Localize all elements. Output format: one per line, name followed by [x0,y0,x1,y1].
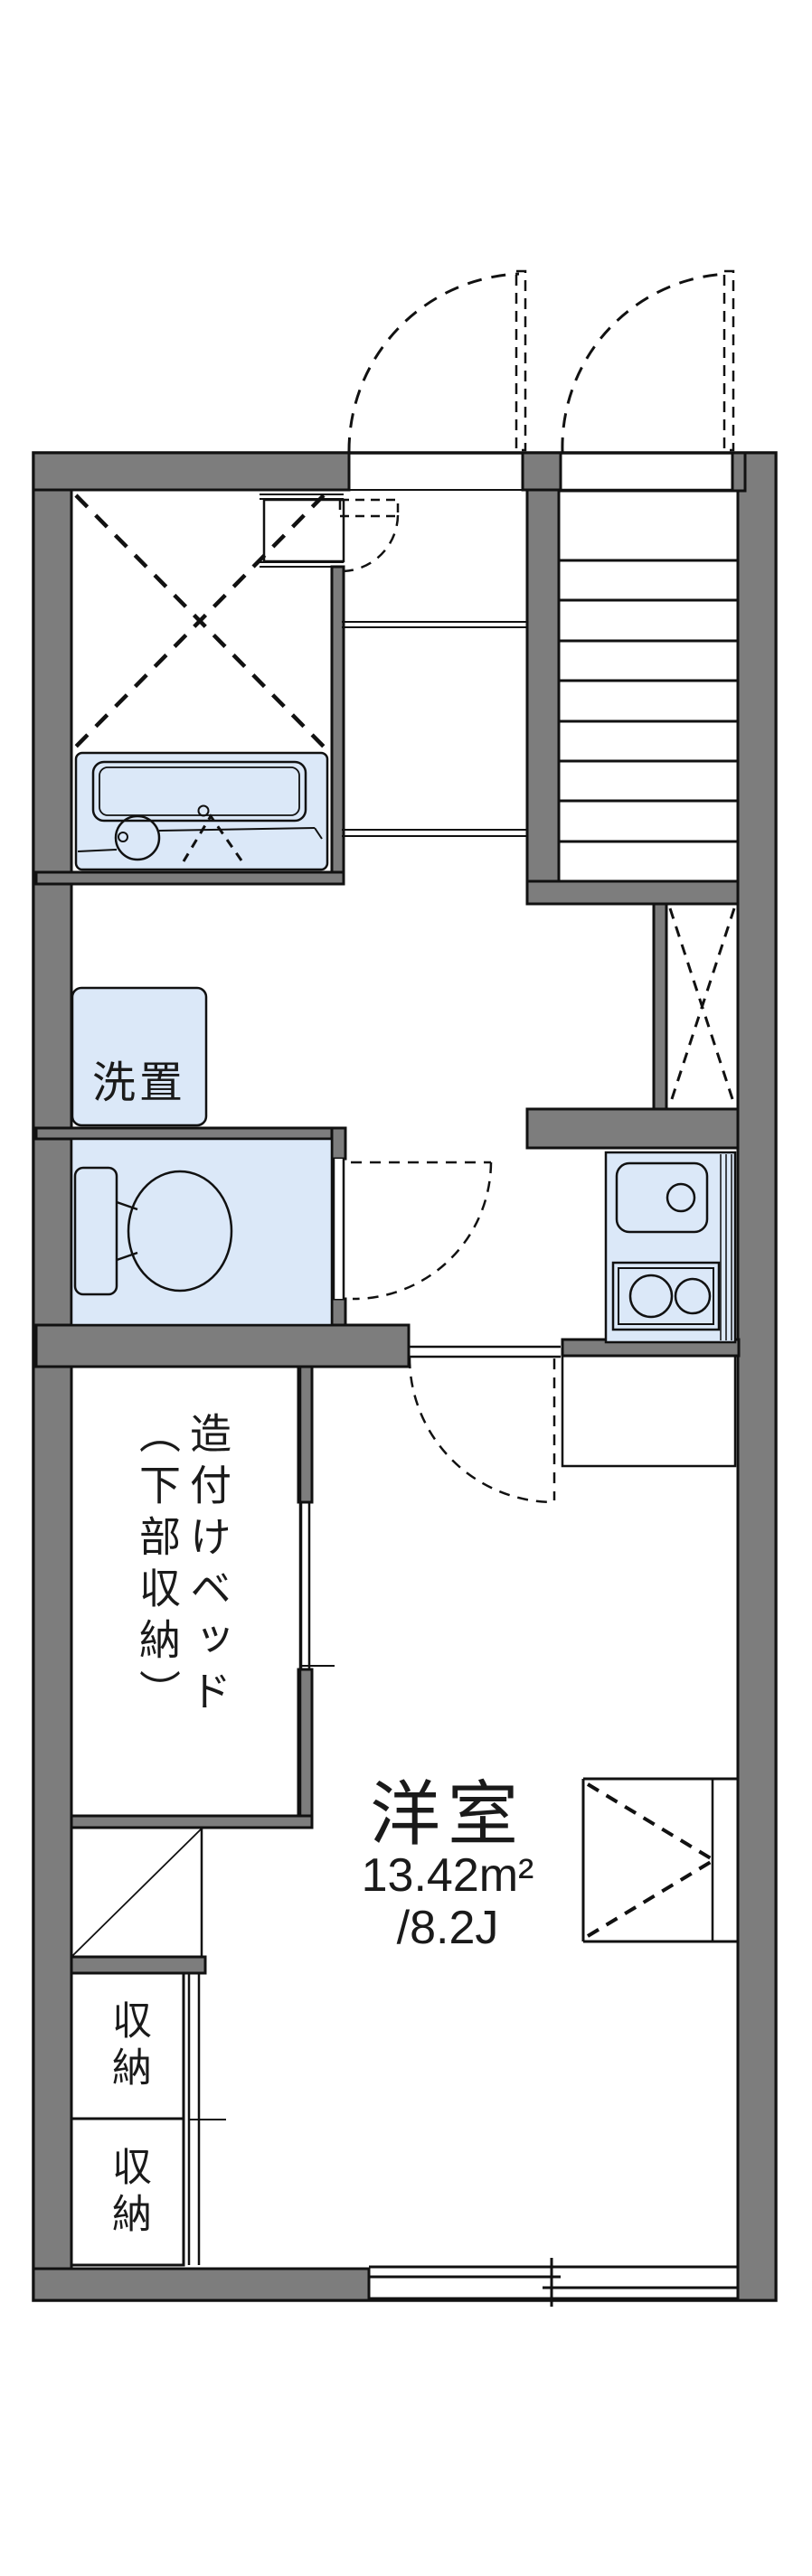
bay-window-chevron-bottom [588,1862,711,1936]
main-room-door [409,1347,561,1502]
built-in-bed-label: 造付けベッド （下部収納） [132,1412,233,1755]
bed-label-line2: （下部収納） [132,1412,183,1755]
wall-top-left-segment [33,453,349,490]
unit-bath [76,753,327,870]
main-room-label-block: 洋室 13.42m² /8.2J [326,1779,570,1954]
wall-bottom-left [33,2269,369,2300]
wall-toilet-bottom [36,1325,409,1367]
bath-door-leaf [340,500,398,516]
wall-bed-bottom [71,1816,312,1828]
kitchen-counter [606,1152,735,1342]
wall-kitchen-top [527,1109,738,1148]
entry-door-1-leaf [516,271,525,450]
entry-door-2-leaf [724,271,733,450]
staircase [559,490,738,881]
hall-cabinet [260,494,344,567]
bay-window [583,1779,738,1941]
wall-stair-left [527,490,559,904]
bath-x-line-2 [76,495,324,747]
wall-left [33,453,71,2300]
wall-washer-toilet [36,1128,344,1139]
wall-right [738,453,776,2300]
main-room-area: 13.42m² [326,1849,570,1902]
main-room-door-swing-arc [410,1358,554,1502]
wall-right-top-nub [732,453,745,491]
storage-label-2: 収納 [71,2122,184,2263]
storage-label-1: 収納 [71,1976,184,2117]
main-room-name: 洋室 [326,1779,570,1849]
floor-window [369,2258,738,2307]
kitchen [562,1152,735,1466]
washer-label: 洗置 [72,1030,206,1125]
counter-desk [71,1828,202,1957]
wall-toilet-stub-top [332,1128,345,1159]
wall-stair-bottom [527,881,738,904]
stair-treads [559,491,738,881]
cabinet-box [264,500,344,561]
entry-door-2-swing-arc [562,274,727,452]
counter-diagonal [72,1829,202,1956]
toilet-door-swing-arc [353,1162,491,1299]
stair-tread-lines [559,560,738,841]
toilet-room [71,1139,491,1325]
main-room-tatami: /8.2J [326,1902,570,1954]
entry-step-lines [342,622,527,836]
bed-label-line1: 造付けベッド [183,1412,233,1755]
unit-bath-room [76,495,398,870]
wall-top-pillar [523,453,561,490]
floorplan-canvas: 洗置 造付けベッド （下部収納） 洋室 13.42m² /8.2J 収納 収納 [0,0,812,2576]
service-shaft [666,904,738,1109]
wall-desk-stub [71,1957,205,1973]
entry-door-1-swing-arc [349,274,519,452]
wall-shaft-left [654,904,666,1109]
wall-bath-bottom [36,872,344,884]
fridge-space [562,1356,735,1466]
bath-door-swing-arc [342,515,398,571]
bay-window-chevron-top [588,1784,711,1858]
